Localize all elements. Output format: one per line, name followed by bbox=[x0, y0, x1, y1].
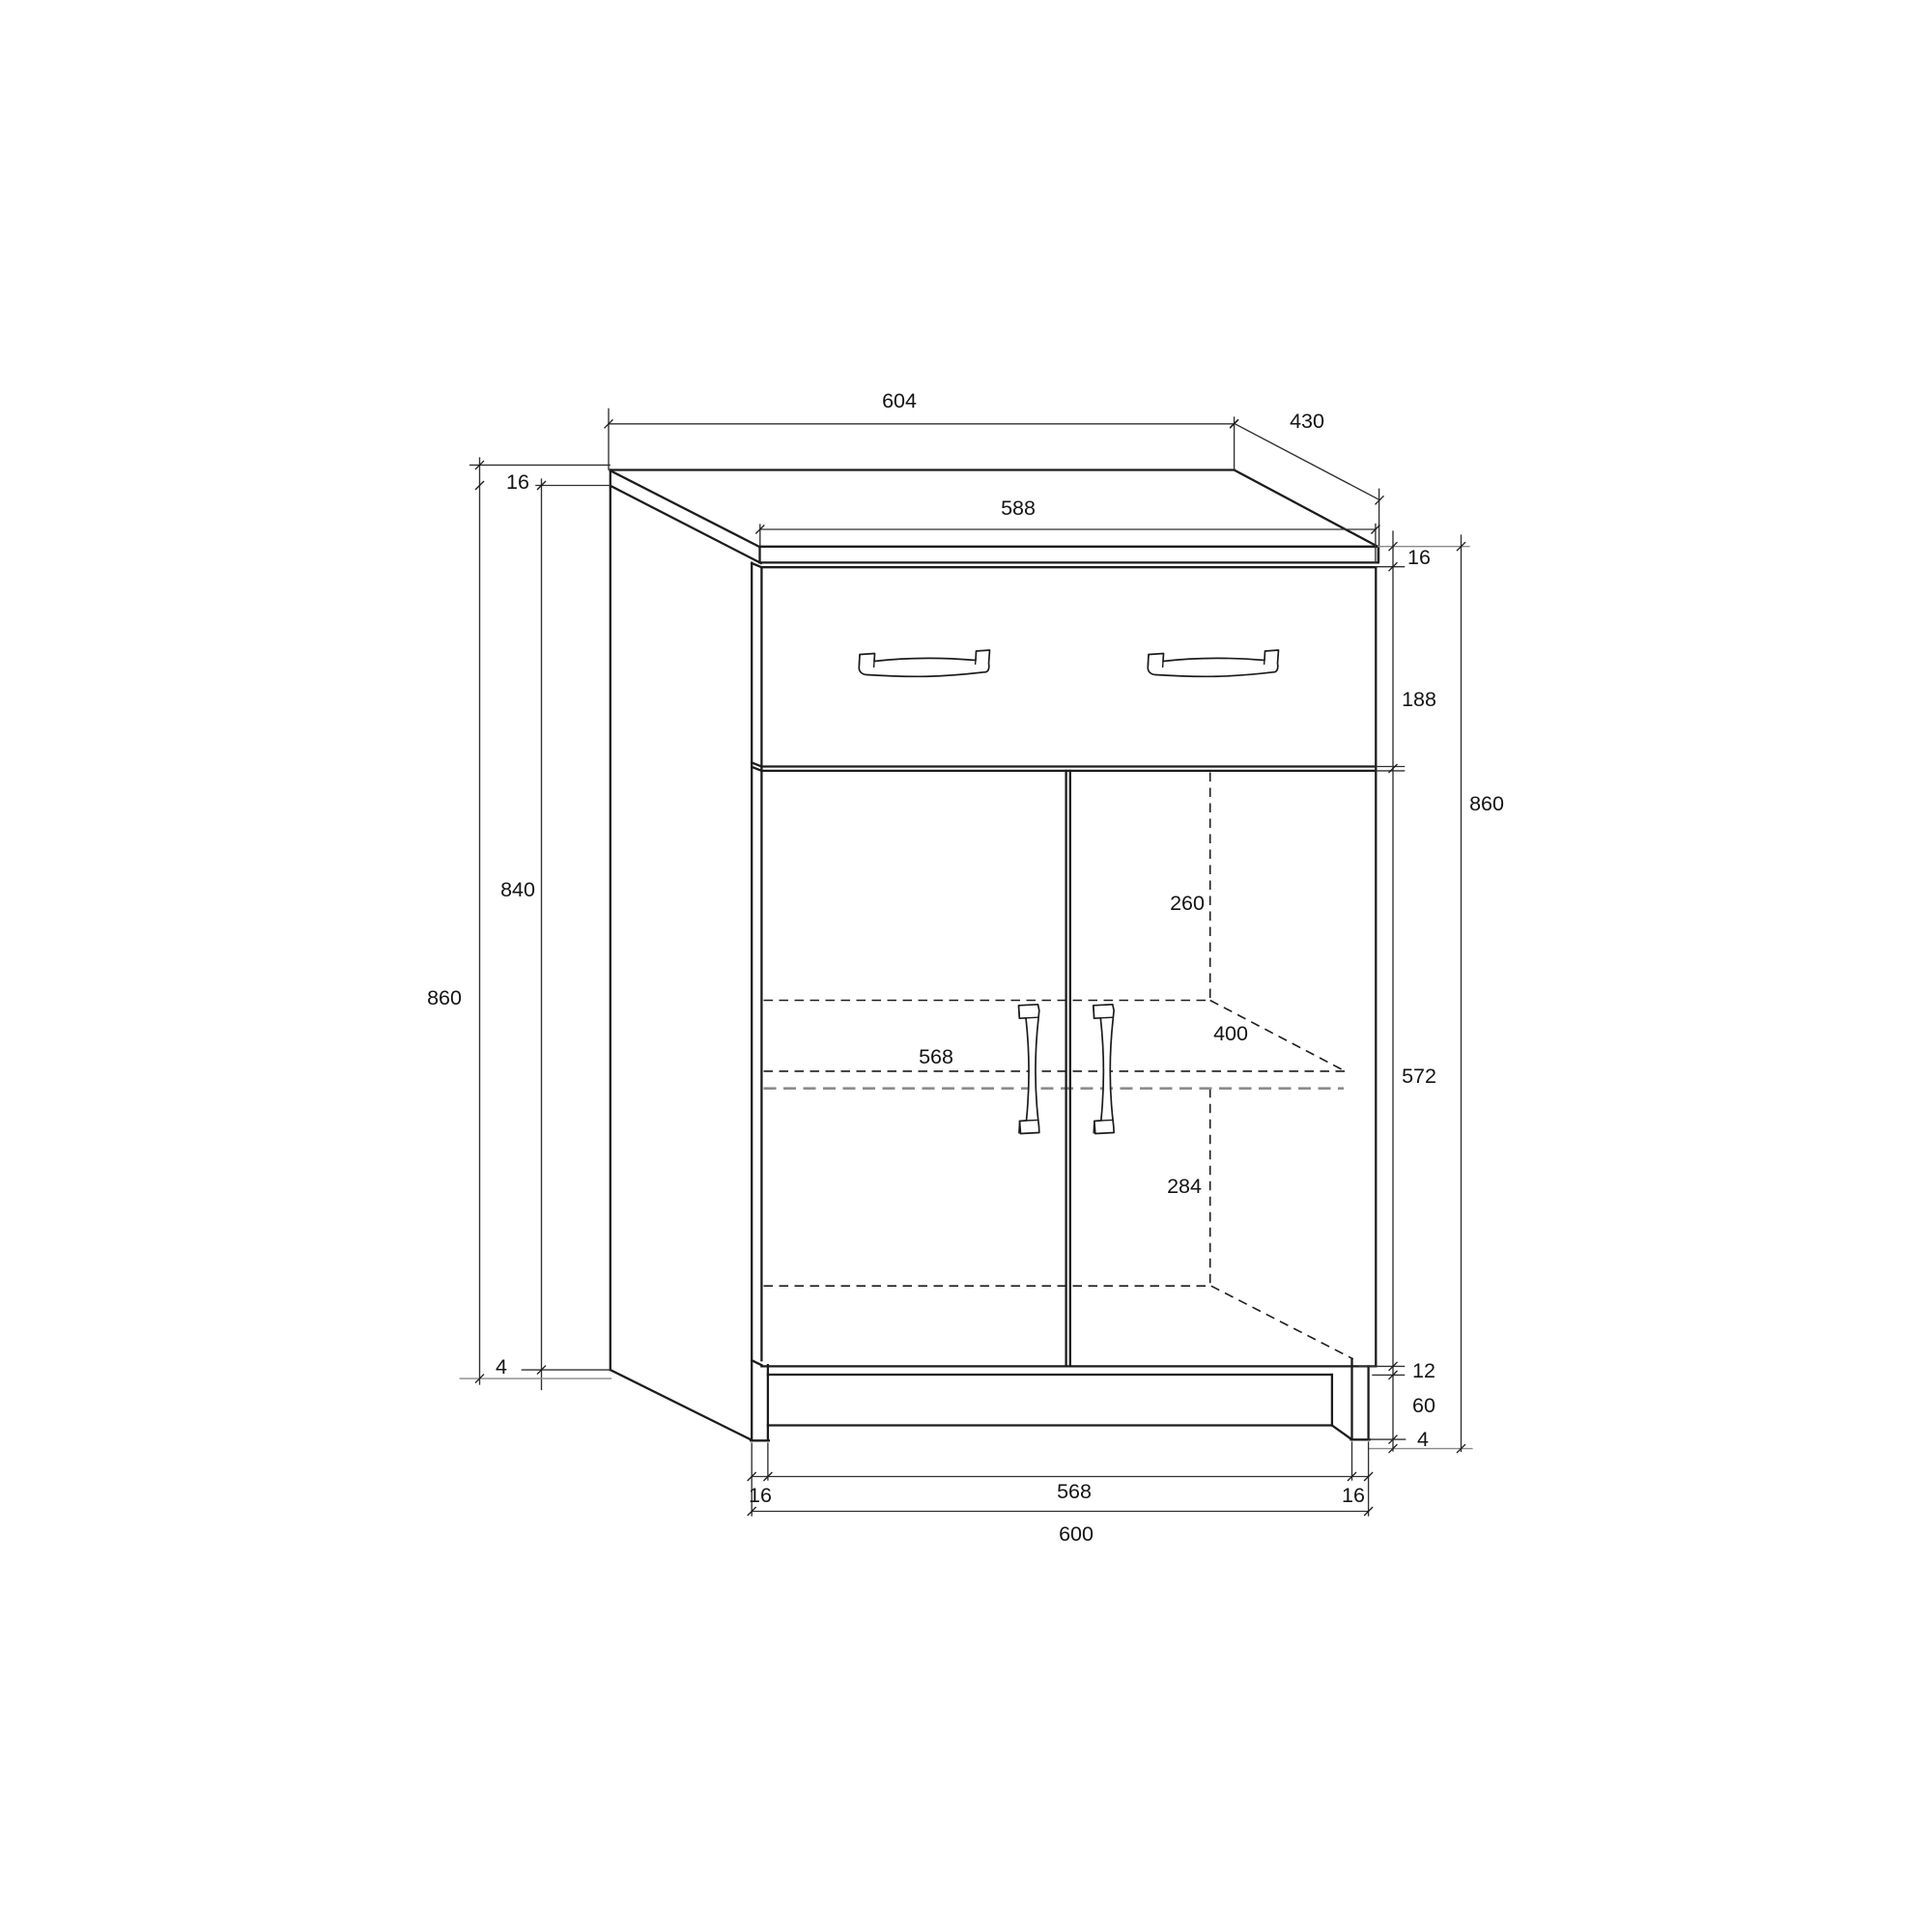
svg-text:604: 604 bbox=[882, 389, 917, 412]
svg-text:4: 4 bbox=[496, 1355, 507, 1378]
svg-text:16: 16 bbox=[506, 470, 529, 494]
svg-text:60: 60 bbox=[1412, 1394, 1435, 1417]
svg-text:430: 430 bbox=[1290, 410, 1324, 433]
svg-text:568: 568 bbox=[919, 1045, 953, 1068]
svg-text:600: 600 bbox=[1059, 1522, 1094, 1546]
svg-text:16: 16 bbox=[749, 1484, 772, 1507]
svg-text:188: 188 bbox=[1402, 688, 1436, 711]
svg-text:16: 16 bbox=[1407, 546, 1431, 569]
svg-text:12: 12 bbox=[1412, 1359, 1435, 1382]
svg-text:840: 840 bbox=[500, 878, 535, 901]
svg-text:572: 572 bbox=[1402, 1065, 1436, 1088]
svg-text:400: 400 bbox=[1213, 1022, 1248, 1045]
svg-text:284: 284 bbox=[1167, 1175, 1202, 1198]
svg-text:4: 4 bbox=[1417, 1428, 1429, 1451]
svg-text:860: 860 bbox=[1469, 792, 1504, 815]
svg-text:860: 860 bbox=[427, 986, 462, 1009]
svg-text:588: 588 bbox=[1001, 497, 1036, 520]
svg-text:260: 260 bbox=[1170, 892, 1205, 915]
svg-text:16: 16 bbox=[1342, 1484, 1365, 1507]
svg-text:568: 568 bbox=[1057, 1480, 1092, 1503]
